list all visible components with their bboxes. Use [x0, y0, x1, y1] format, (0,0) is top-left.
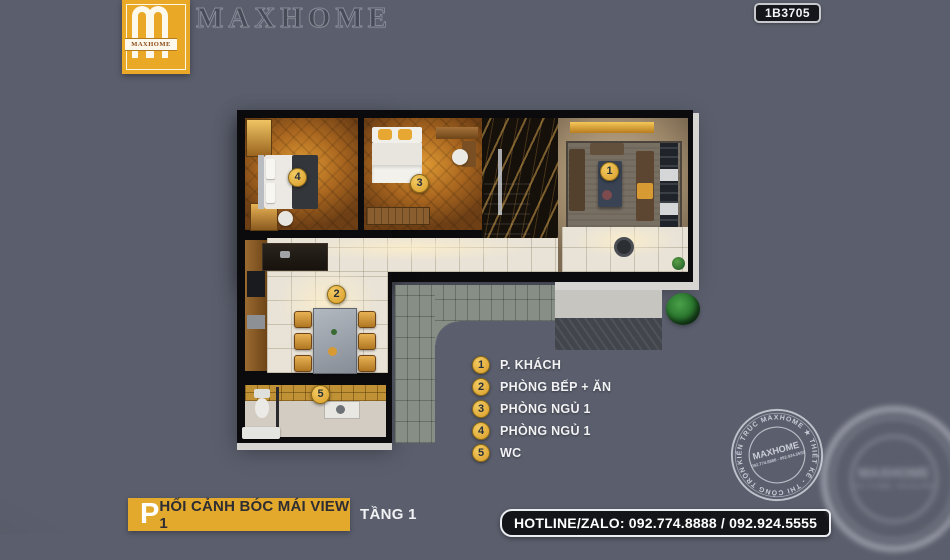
bedroom-3-console — [436, 127, 478, 139]
room-marker-5: 5 — [311, 385, 330, 404]
ceiling-fan — [614, 237, 634, 257]
logo-m-icon — [132, 6, 172, 62]
legend-label: PHÒNG NGỦ 1 — [500, 402, 591, 416]
dining-chair — [358, 333, 376, 350]
legend-label: P. KHÁCH — [500, 358, 561, 372]
kitchen-appliance-2 — [247, 315, 265, 329]
page-title: MAXHOME — [196, 2, 392, 35]
dining-table — [313, 308, 357, 374]
kitchen-appliance — [247, 271, 265, 297]
kitchen-counter-top — [262, 243, 328, 271]
sofa-left — [569, 149, 585, 211]
view-title-initial: P — [140, 498, 159, 531]
legend-number-badge: 3 — [472, 400, 490, 418]
kitchen-sink — [280, 251, 290, 258]
dining-chair — [358, 311, 376, 328]
floor-plan: 1 2 3 4 5 — [232, 105, 700, 453]
bedroom-3-bench — [366, 207, 430, 225]
walkway-band — [555, 290, 662, 318]
floor-label: TẦNG 1 — [360, 498, 417, 531]
doormat — [242, 427, 280, 439]
legend-item: 3 PHÒNG NGỦ 1 — [472, 400, 611, 418]
apron-bottom-left-leg — [237, 443, 392, 450]
bedroom-3-lamp-glow-2 — [398, 129, 412, 140]
watermark-stamp-blurred: MAXHOME 092.774.8888 - 092.924.5555 — [818, 403, 950, 555]
dining-chair — [294, 333, 312, 350]
legend-item: 1 P. KHÁCH — [472, 356, 611, 374]
bedroom-3-lamp-glow — [378, 129, 392, 140]
dining-decor-2 — [328, 347, 337, 356]
stair-steps — [484, 175, 530, 235]
stamp-blur-phone: 092.774.8888 - 092.924.5555 — [854, 483, 934, 490]
toilet-tank — [254, 389, 270, 398]
legend-item: 4 PHÒNG NGỦ 1 — [472, 422, 611, 440]
dark-paving — [555, 318, 662, 350]
dining-chair — [294, 311, 312, 328]
toilet — [255, 398, 269, 418]
stamp-blur-graphic: MAXHOME 092.774.8888 - 092.924.5555 — [818, 403, 950, 555]
living-console — [570, 122, 654, 133]
room-marker-1: 1 — [600, 162, 619, 181]
maxhome-logo: MAXHOME — [122, 0, 190, 74]
logo-brand-text: MAXHOME — [125, 38, 177, 51]
wc-basin — [336, 405, 345, 414]
bedroom-4-wardrobe — [246, 119, 272, 157]
legend-item: 2 PHÒNG BẾP + ĂN — [472, 378, 611, 396]
stamp-blur-brand: MAXHOME — [858, 465, 929, 480]
design-code-text: 1B3705 — [756, 5, 819, 21]
tv-wall — [660, 143, 678, 237]
legend-item: 5 WC — [472, 444, 611, 462]
tv-wall-panel-2 — [660, 203, 678, 215]
legend-number-badge: 5 — [472, 444, 490, 462]
dining-chair — [294, 355, 312, 372]
room-legend: 1 P. KHÁCH 2 PHÒNG BẾP + ĂN 3 PHÒNG NGỦ … — [472, 356, 611, 466]
room-marker-2: 2 — [327, 285, 346, 304]
bedroom-3-bed — [372, 143, 422, 165]
bedroom-3-pouf — [452, 149, 468, 165]
apron-right — [693, 113, 699, 285]
legend-label: PHÒNG NGỦ 1 — [500, 424, 591, 438]
living-plant — [672, 257, 685, 270]
hotline-text: HOTLINE/ZALO: 092.774.8888 / 092.924.555… — [514, 515, 817, 531]
sofa-top — [590, 143, 624, 155]
bedroom-4-pillow-2 — [266, 183, 275, 203]
legend-label: WC — [500, 446, 521, 460]
bedroom-4-pillow — [266, 159, 275, 179]
sofa-throw — [637, 183, 653, 199]
terrace-corner-fillet — [435, 321, 459, 345]
legend-number-badge: 4 — [472, 422, 490, 440]
legend-number-badge: 1 — [472, 356, 490, 374]
hotline-bar: HOTLINE/ZALO: 092.774.8888 / 092.924.555… — [500, 509, 831, 537]
room-marker-4: 4 — [288, 168, 307, 187]
view-title-text: HỐI CẢNH BÓC MÁI VIEW 1 — [159, 498, 350, 532]
apron-bottom-right-wing — [555, 282, 699, 290]
legend-label: PHÒNG BẾP + ĂN — [500, 380, 611, 394]
design-code-badge: 1B3705 — [754, 3, 821, 23]
tv-wall-panel — [660, 169, 678, 181]
dining-chair — [358, 355, 376, 372]
legend-number-badge: 2 — [472, 378, 490, 396]
coffee-table-bowl — [602, 190, 612, 200]
dining-decor — [331, 329, 337, 335]
room-marker-3: 3 — [410, 174, 429, 193]
terrace-vertical — [395, 285, 435, 443]
garden-bush — [666, 293, 700, 325]
bedroom-4-stool — [278, 211, 293, 226]
view-title-bar: P HỐI CẢNH BÓC MÁI VIEW 1 — [128, 498, 350, 531]
